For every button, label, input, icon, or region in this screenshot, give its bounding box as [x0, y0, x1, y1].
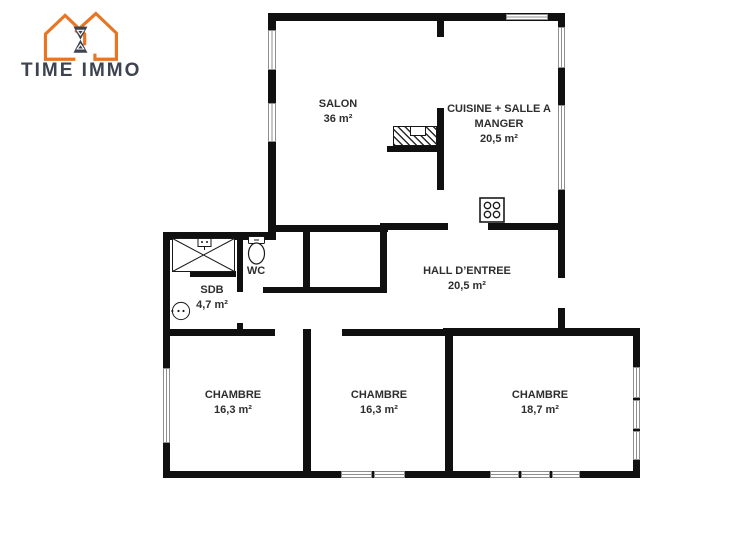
room-area: 36 m² [319, 112, 358, 127]
room-name: MANGER [447, 117, 551, 132]
room-label-sdb: SDB 4,7 m² [196, 283, 228, 313]
room-label-cuisine: CUISINE + SALLE A MANGER 20,5 m² [447, 102, 551, 147]
wall-chambres-top-mid [342, 329, 443, 336]
window-chambre2-bottom-1 [341, 471, 372, 478]
wall-fireplace-base [387, 146, 438, 152]
room-area: 4,7 m² [196, 298, 228, 313]
wall-wc-bottom [263, 287, 387, 293]
window-chambre1-left [163, 368, 170, 443]
room-name: CHAMBRE [205, 388, 261, 403]
window-top [506, 14, 548, 20]
wall-divider-chambre1-2 [303, 329, 311, 478]
room-label-hall: HALL D’ENTREE 20,5 m² [423, 264, 511, 294]
room-label-chambre3: CHAMBRE 18,7 m² [512, 388, 568, 418]
room-label-wc: WC [247, 264, 265, 279]
wall-chambre3-top [443, 328, 640, 336]
room-label-salon: SALON 36 m² [319, 97, 358, 127]
floorplan-page: TIME IMMO [0, 0, 736, 552]
room-name: CHAMBRE [512, 388, 568, 403]
wall-salon-bottom [268, 225, 388, 232]
room-label-chambre1: CHAMBRE 16,3 m² [205, 388, 261, 418]
window-cuisine-right-1 [558, 27, 565, 68]
wall-wc-right [303, 232, 310, 288]
wall-divider-salon-cuisine-upper [437, 21, 444, 37]
window-salon-left-2 [268, 103, 276, 142]
fireplace-notch [410, 126, 426, 136]
floor-plan: SALON 36 m² CUISINE + SALLE A MANGER 20,… [0, 0, 736, 552]
room-area: 16,3 m² [205, 403, 261, 418]
room-name: CUISINE + SALLE A [447, 102, 551, 117]
wall-hall-left [380, 223, 387, 293]
wall-divider-salon-cuisine-lower [437, 108, 444, 190]
room-name: CHAMBRE [351, 388, 407, 403]
room-name: WC [247, 264, 265, 279]
room-area: 16,3 m² [351, 403, 407, 418]
window-chambre3-bottom-1 [490, 471, 519, 478]
window-chambre3-right-1 [633, 367, 640, 398]
wall-divider-chambre2-3 [445, 336, 453, 476]
window-chambre3-right-3 [633, 431, 640, 460]
room-name: HALL D’ENTREE [423, 264, 511, 279]
room-name: SDB [196, 283, 228, 298]
room-area: 18,7 m² [512, 403, 568, 418]
room-area: 20,5 m² [423, 279, 511, 294]
window-cuisine-right-2 [558, 105, 565, 190]
window-chambre3-bottom-3 [552, 471, 580, 478]
window-salon-left-1 [268, 30, 276, 70]
wall-divider-sdb-wc [237, 232, 243, 292]
stove-icon [479, 197, 505, 223]
window-chambre3-right-2 [633, 400, 640, 429]
shower-icon [172, 238, 235, 272]
room-label-chambre2: CHAMBRE 16,3 m² [351, 388, 407, 418]
wall-cuisine-bottom-right [488, 223, 560, 230]
washbasin-icon [171, 301, 191, 321]
room-area: 20,5 m² [447, 132, 551, 147]
window-chambre3-bottom-2 [521, 471, 550, 478]
room-name: SALON [319, 97, 358, 112]
wall-cuisine-bottom-left [380, 223, 448, 230]
toilet-icon [247, 236, 267, 265]
window-chambre2-bottom-2 [374, 471, 405, 478]
wall-chambres-top-left [163, 329, 275, 336]
